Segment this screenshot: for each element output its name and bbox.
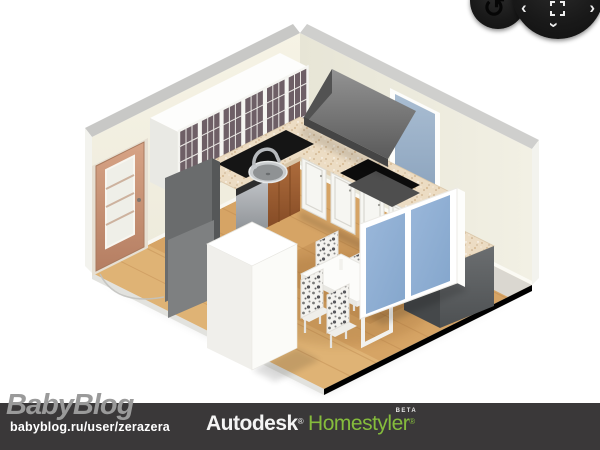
homestyler-wordmark: Homestyler [308,412,409,435]
autodesk-reg-mark: ® [298,417,304,426]
3d-room-view[interactable] [0,0,600,450]
homestyler-reg-mark: ® [409,417,415,426]
door-glass-panel [106,156,134,248]
beta-badge: BETA [396,408,418,414]
babyblog-watermark-logo: BabyBlog [6,390,133,420]
autodesk-homestyler-logo: Autodesk® Homestyler® BETA [206,412,415,436]
autodesk-wordmark: Autodesk [206,412,298,435]
center-view-icon[interactable] [550,1,565,16]
pan-left-icon[interactable]: ‹ [521,0,527,16]
pan-down-icon[interactable]: › [546,22,562,28]
homestyler-canvas: ↺ ‹ › › BabyBlog babyblog.ru/user/zeraze… [0,0,600,450]
pan-right-icon[interactable]: › [589,0,595,16]
door-handle [137,198,141,202]
rotate-icon: ↺ [483,0,506,22]
watermark-url: babyblog.ru/user/zerazera [10,420,170,434]
